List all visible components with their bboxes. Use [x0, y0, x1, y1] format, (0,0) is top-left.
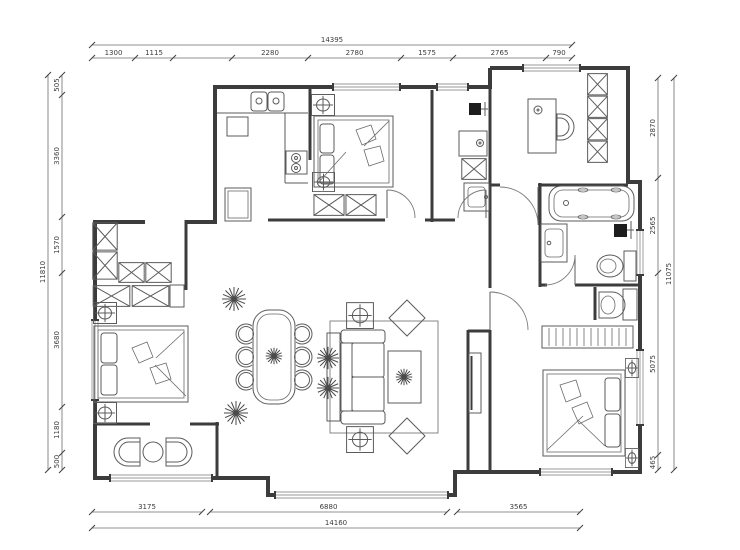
- dim-label: 1115: [145, 49, 163, 57]
- dim-label: 11810: [39, 261, 47, 283]
- rug: [330, 321, 438, 433]
- dim-label: 2870: [649, 119, 657, 137]
- floor-lamp-icon: [347, 427, 374, 453]
- double-bed: [94, 326, 188, 402]
- floor-plan-canvas: 1300111522802780157527657901439531756880…: [0, 0, 740, 550]
- pillow: [320, 155, 334, 184]
- dim-label: 14395: [321, 36, 343, 44]
- window: [333, 83, 400, 91]
- lounge-chair: [114, 438, 140, 466]
- plant-icon: [317, 347, 339, 369]
- door-arc: [387, 190, 415, 218]
- master-bedroom: [93, 223, 188, 424]
- dining-chair: [239, 373, 254, 388]
- dim-label: 1575: [418, 49, 436, 57]
- wardrobe-icon: [93, 286, 130, 307]
- wardrobe-icon: [314, 195, 344, 216]
- dim-label: 1180: [53, 421, 61, 439]
- dim-label: 505: [53, 78, 61, 91]
- floor-plan: 1300111522802780157527657901439531756880…: [0, 0, 740, 550]
- sofa: [341, 330, 385, 424]
- wardrobe-icon: [132, 286, 169, 307]
- nightstand-lamp-icon: [625, 448, 638, 467]
- quilt: [547, 380, 605, 450]
- dim-label: 1570: [53, 236, 61, 254]
- door-arc: [490, 292, 528, 330]
- washing-machine: [459, 131, 487, 156]
- interior-walls: [95, 87, 642, 478]
- dim-label: 500: [53, 455, 61, 468]
- toilet: [597, 251, 636, 281]
- dim-label: 2765: [491, 49, 509, 57]
- wardrobe-icon: [146, 263, 171, 283]
- door-arc: [500, 187, 538, 225]
- dim-label: 2280: [261, 49, 279, 57]
- dining-chair: [295, 373, 310, 388]
- dining-chair: [239, 327, 254, 342]
- windows: [91, 64, 644, 499]
- laundry-room: [459, 102, 489, 211]
- radiator: [542, 326, 633, 348]
- dining-chair: [239, 350, 254, 365]
- plant-icon: [317, 377, 339, 399]
- bathtub: [549, 186, 634, 221]
- bay-window: [275, 491, 448, 499]
- door-arc: [458, 190, 486, 218]
- dim-label: 6880: [320, 503, 338, 511]
- dim-label: 5075: [649, 355, 657, 373]
- window: [636, 230, 644, 275]
- lounge-chair: [166, 438, 192, 466]
- side-cabinet: [170, 285, 184, 307]
- refrigerator: [225, 188, 251, 221]
- nightstand-lamp-icon: [312, 172, 334, 191]
- desk: [528, 99, 556, 153]
- wardrobe-icon: [119, 263, 144, 283]
- pillow: [605, 414, 620, 447]
- plant-icon: [396, 369, 413, 386]
- dim-label: 2565: [649, 217, 657, 235]
- window: [437, 83, 468, 91]
- bathroom: [541, 186, 636, 281]
- bedroom-top: [312, 94, 394, 215]
- quilt: [132, 332, 186, 396]
- bookshelf: [588, 74, 608, 163]
- nightstand-lamp-icon: [312, 94, 335, 115]
- dining-chair: [295, 350, 310, 365]
- dim-label: 3175: [138, 503, 156, 511]
- pillow: [605, 378, 620, 411]
- kitchen: [217, 92, 308, 221]
- plant-icon: [224, 401, 248, 425]
- dim-label: 3565: [510, 503, 528, 511]
- wash-basin: [599, 292, 625, 318]
- dim-label: 790: [552, 49, 565, 57]
- cabinet-icon: [462, 159, 486, 180]
- dim-label: 465: [649, 456, 657, 469]
- double-bed: [543, 370, 625, 456]
- dim-label: 1300: [105, 49, 123, 57]
- laundry-sink: [464, 183, 489, 211]
- plant-icon: [266, 348, 283, 365]
- pillow: [101, 333, 117, 363]
- wardrobe-icon: [346, 195, 376, 216]
- water-heater: [614, 224, 627, 237]
- double-bed: [314, 116, 393, 187]
- balcony-table: [143, 442, 163, 462]
- window: [523, 64, 580, 72]
- dim-label: 3360: [53, 147, 61, 165]
- balcony: [114, 438, 192, 466]
- dim-label: 11075: [665, 263, 673, 285]
- living-room: [317, 300, 481, 454]
- armchair: [389, 300, 425, 336]
- console-table: [327, 333, 340, 421]
- study: [528, 74, 607, 163]
- pillow: [101, 365, 117, 395]
- dim-label: 14160: [325, 519, 347, 527]
- stove: [286, 151, 307, 174]
- dim-label: 2780: [346, 49, 364, 57]
- armchair: [389, 418, 425, 454]
- vanity-basin: [541, 224, 567, 262]
- window: [636, 350, 644, 425]
- tv-unit: [469, 353, 481, 413]
- water-heater: [469, 103, 481, 115]
- window: [540, 468, 612, 476]
- desk-chair: [557, 114, 574, 140]
- floor-lamp-icon: [347, 303, 374, 329]
- pillow: [320, 124, 334, 153]
- door-arc: [545, 255, 575, 285]
- interior-wall-path: [95, 87, 642, 478]
- bedroom-right: [542, 289, 639, 468]
- window: [110, 474, 212, 482]
- dining-area: [222, 287, 312, 425]
- double-sink: [251, 92, 284, 111]
- plant-icon: [222, 287, 246, 311]
- quilt: [318, 121, 389, 183]
- dim-label: 3680: [53, 331, 61, 349]
- cutting-board: [227, 117, 248, 136]
- dining-chair: [295, 327, 310, 342]
